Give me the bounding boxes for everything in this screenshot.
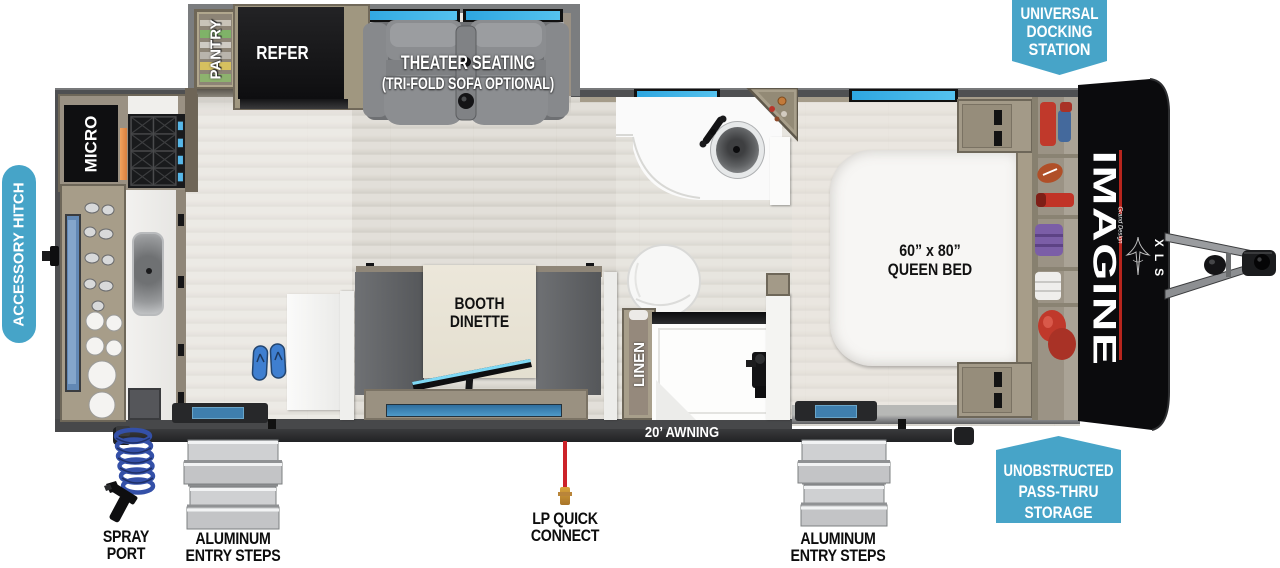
- svg-text:STORAGE: STORAGE: [1025, 504, 1093, 522]
- svg-text:UNOBSTRUCTED: UNOBSTRUCTED: [1004, 462, 1114, 480]
- svg-text:STATION: STATION: [1029, 41, 1091, 59]
- svg-text:DOCKING: DOCKING: [1027, 23, 1093, 41]
- svg-text:UNIVERSAL: UNIVERSAL: [1021, 5, 1099, 23]
- svg-text:PASS-THRU: PASS-THRU: [1019, 483, 1099, 501]
